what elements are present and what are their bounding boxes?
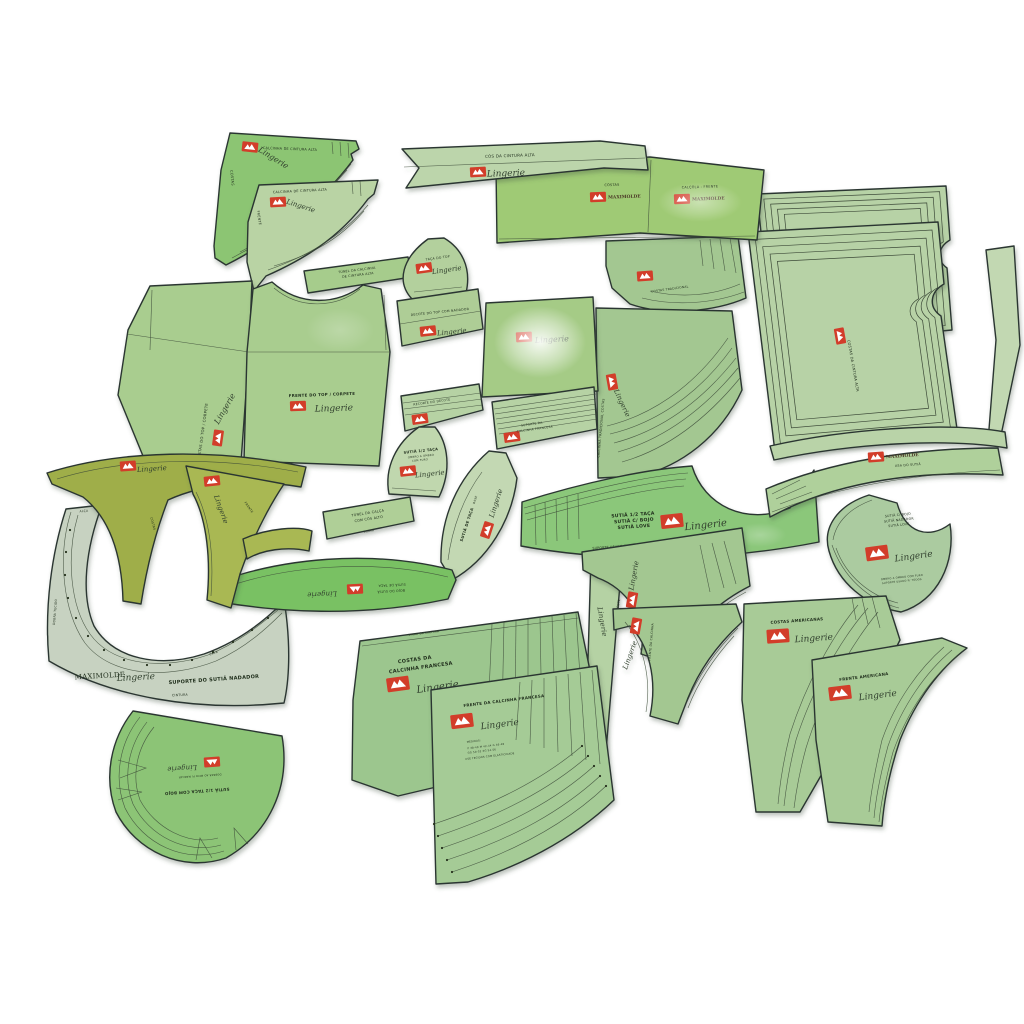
lingerie-script: Lingerie (314, 403, 354, 414)
lingerie-script: Lingerie (486, 168, 526, 179)
lingerie-script: Lingerie (307, 589, 338, 599)
maximolde-logo (290, 401, 306, 412)
notch-dot (433, 823, 435, 825)
notch-dot (581, 745, 583, 747)
notch-dot (437, 835, 439, 837)
maximolde-logo (270, 197, 287, 208)
pattern-piece-taca-do-top-com-bojo: Lingerie (482, 297, 598, 397)
pattern-pieces-canvas: COSTAS TRADICIONALLingerieCALCINHA TRADI… (0, 0, 1024, 1024)
pattern-piece-cintura-alta-quad-2: COSTAS DA CINTURA ALTA (748, 222, 958, 452)
light-glare (306, 308, 374, 352)
lingerie-pattern-photo: COSTAS TRADICIONALLingerieCALCINHA TRADI… (0, 0, 1024, 1024)
notch-dot (251, 629, 253, 631)
maximolde-logo (204, 475, 221, 487)
notch-dot (64, 574, 66, 576)
notch-dot (65, 551, 67, 553)
notch-dot (593, 765, 595, 767)
notch-dot (451, 871, 453, 873)
pattern-piece-frente-do-top-corpete: LingerieFRENTE DO TOP / CORPETE (244, 282, 390, 466)
notch-dot (103, 649, 105, 651)
notch-dot (169, 664, 171, 666)
piece-outline (244, 282, 390, 466)
maximolde-logo (766, 628, 789, 644)
notch-dot (267, 617, 269, 619)
maximolde-logo (660, 513, 684, 529)
maximolde-logo (347, 584, 364, 595)
light-glare (658, 182, 742, 222)
notch-dot (232, 641, 234, 643)
maximolde-logo (120, 460, 137, 471)
notch-dot (146, 664, 148, 666)
maximolde-logo (204, 756, 221, 767)
maximolde-logo (828, 685, 852, 702)
notch-dot (191, 659, 193, 661)
light-glare (494, 306, 586, 378)
notch-dot (69, 529, 71, 531)
notch-dot (75, 617, 77, 619)
piece-outline (748, 222, 958, 452)
notch-dot (441, 847, 443, 849)
notch-dot (446, 859, 448, 861)
notch-dot (605, 785, 607, 787)
maximolde-logo (470, 167, 487, 178)
maximolde-logo (637, 270, 654, 281)
piece-outline (606, 236, 746, 311)
maximolde-logo (420, 325, 437, 337)
notch-dot (587, 755, 589, 757)
notch-dot (599, 775, 601, 777)
notch-dot (123, 659, 125, 661)
piece-label: COSTAS (604, 183, 619, 188)
maximolde-logo (242, 141, 259, 153)
notch-dot (67, 597, 69, 599)
pattern-piece-calcinha-tradicional-costas-1: COSTAS TRADICIONAL (606, 236, 746, 311)
piece-label: ALÇA (79, 509, 89, 514)
maximolde-logo (450, 713, 474, 730)
notch-dot (87, 635, 89, 637)
